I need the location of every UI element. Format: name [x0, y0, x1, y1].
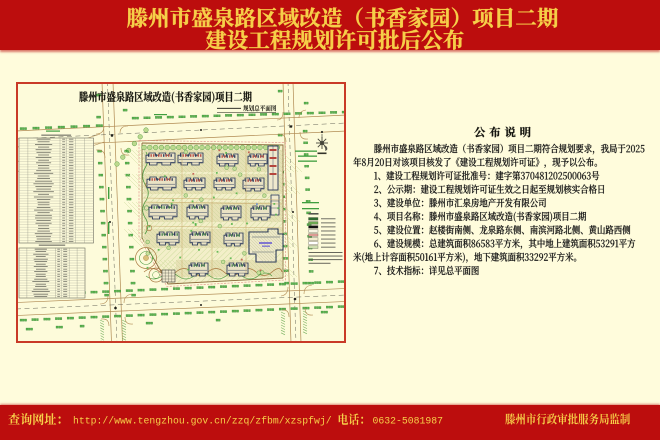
svg-text:0632-5081987: 0632-5081987 [373, 416, 444, 427]
svg-text:http://www.tengzhou.gov.cn/zzq: http://www.tengzhou.gov.cn/zzq/zfbm/xzsp… [73, 416, 332, 427]
